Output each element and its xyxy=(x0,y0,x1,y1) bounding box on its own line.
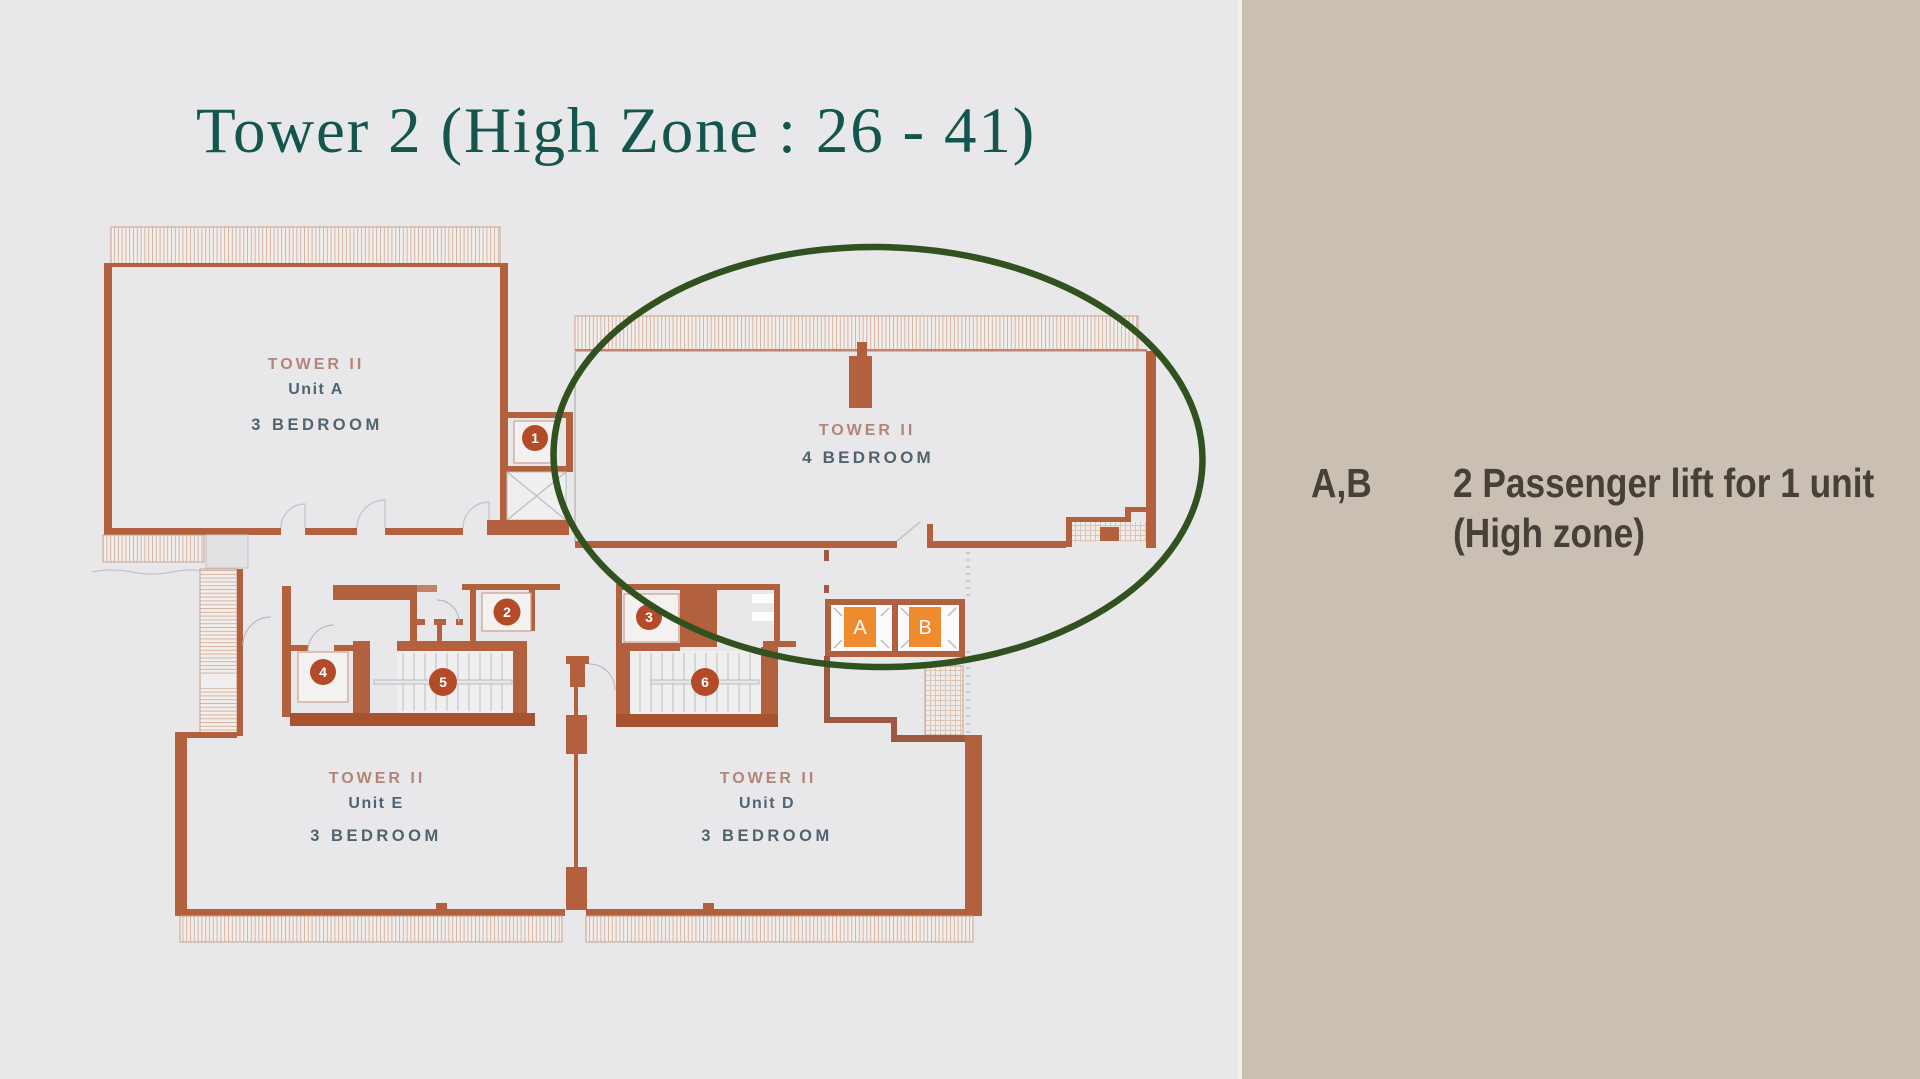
svg-text:1: 1 xyxy=(531,430,539,446)
svg-text:TOWER II: TOWER II xyxy=(329,770,426,787)
svg-text:3 BEDROOM: 3 BEDROOM xyxy=(310,827,441,845)
svg-text:A: A xyxy=(853,617,867,639)
svg-text:Unit E: Unit E xyxy=(348,795,403,812)
svg-text:B: B xyxy=(918,617,931,639)
svg-text:3 BEDROOM: 3 BEDROOM xyxy=(701,827,832,845)
svg-text:TOWER II: TOWER II xyxy=(268,356,365,373)
svg-text:5: 5 xyxy=(439,674,447,690)
svg-text:Unit A: Unit A xyxy=(288,381,344,398)
svg-text:4 BEDROOM: 4 BEDROOM xyxy=(802,448,934,467)
svg-text:4: 4 xyxy=(319,664,327,680)
svg-text:TOWER II: TOWER II xyxy=(819,422,916,439)
svg-text:3 BEDROOM: 3 BEDROOM xyxy=(251,416,382,434)
svg-text:6: 6 xyxy=(701,674,709,690)
svg-text:2: 2 xyxy=(503,604,511,620)
svg-text:TOWER II: TOWER II xyxy=(720,770,817,787)
svg-text:3: 3 xyxy=(645,609,653,625)
svg-text:Unit D: Unit D xyxy=(739,795,795,812)
